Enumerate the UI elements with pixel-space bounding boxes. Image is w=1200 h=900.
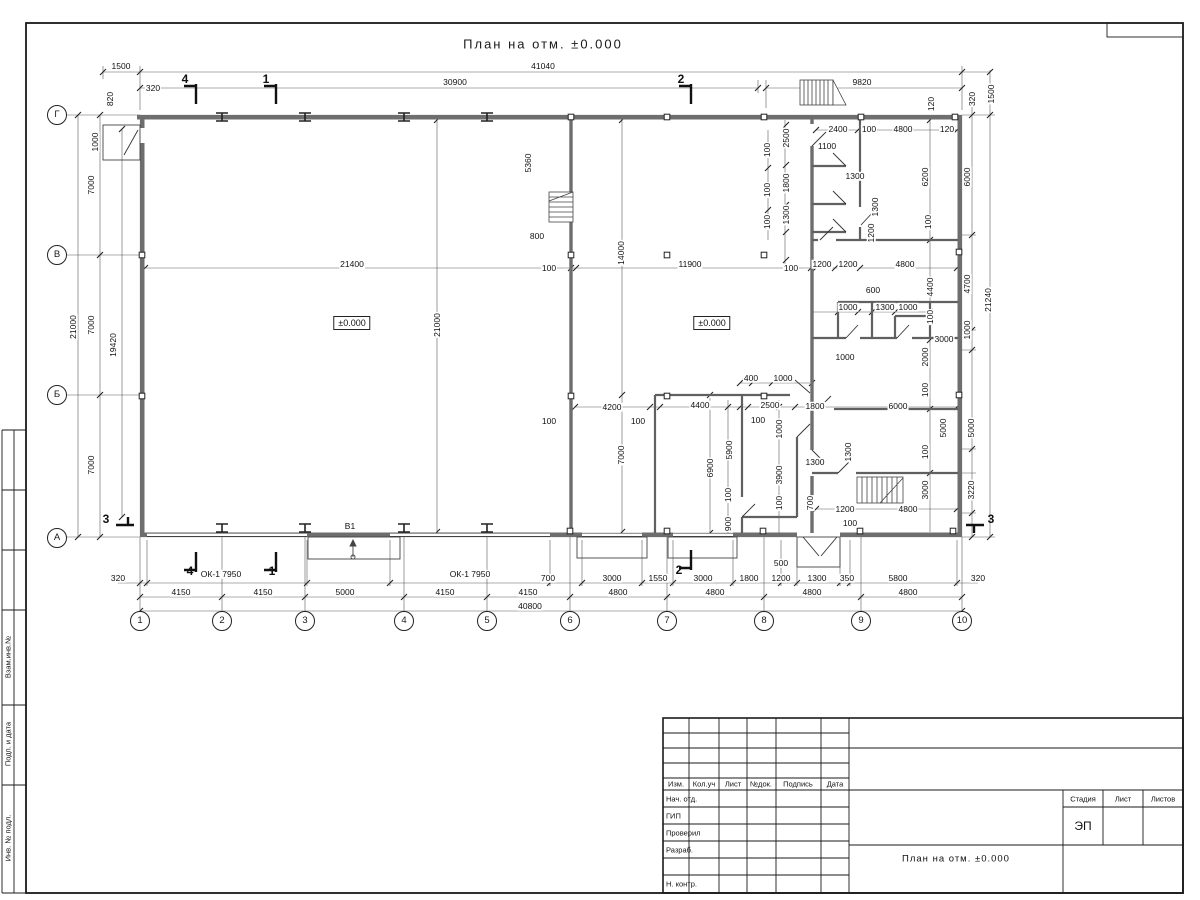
dim-label: 1200 xyxy=(838,260,859,269)
dim-label: 320 xyxy=(110,574,126,583)
dim-label: 1300 xyxy=(805,458,826,467)
tb-rev-header: Изм. xyxy=(668,780,684,788)
dim-label: 120 xyxy=(927,96,936,112)
axis-bubble-col-7: 7 xyxy=(657,611,677,631)
dim-label: 1300 xyxy=(845,172,866,181)
dim-label: 320 xyxy=(968,91,977,107)
column-square xyxy=(568,393,574,399)
column-square xyxy=(568,114,574,120)
dim-label: 4150 xyxy=(171,588,192,597)
column-square xyxy=(761,114,767,120)
dim-label: 400 xyxy=(743,374,759,383)
dim-label: 1300 xyxy=(807,574,828,583)
dim-label: 21000 xyxy=(433,312,442,338)
tb-role-label: Проверил xyxy=(666,829,701,837)
dim-label: 1800 xyxy=(782,173,791,194)
dim-label: 100 xyxy=(750,416,766,425)
dim-label: ОК-1 7950 xyxy=(449,570,491,579)
dim-label: 1300 xyxy=(782,205,791,226)
dim-label: 820 xyxy=(106,91,115,107)
axis-bubble-col-8: 8 xyxy=(754,611,774,631)
dim-label: 4150 xyxy=(518,588,539,597)
dim-label: 5900 xyxy=(725,440,734,461)
dim-label: 3000 xyxy=(921,480,930,501)
stair-bottom-right xyxy=(857,477,903,503)
dim-label: 2000 xyxy=(921,347,930,368)
dim-label: 100 xyxy=(724,487,733,503)
dim-label: В1 xyxy=(344,522,356,531)
dim-label: 7000 xyxy=(87,315,96,336)
column-square xyxy=(956,249,962,255)
dim-label: 1100 xyxy=(817,142,837,151)
dim-label: 4150 xyxy=(435,588,456,597)
column-square xyxy=(664,528,670,534)
dim-label: 6000 xyxy=(963,167,972,188)
dim-label: ±0.000 xyxy=(333,316,370,330)
column-square xyxy=(568,252,574,258)
dim-label: 4200 xyxy=(602,403,623,412)
tb-role-label: Нач. отд. xyxy=(666,795,697,803)
dim-label: 1000 xyxy=(91,132,100,153)
dim-label: 350 xyxy=(839,574,855,583)
axis-bubble-col-5: 5 xyxy=(477,611,497,631)
dim-label: 7000 xyxy=(87,175,96,196)
dim-label: 900 xyxy=(724,516,733,532)
axis-bubble-col-9: 9 xyxy=(851,611,871,631)
walls xyxy=(137,115,962,537)
column-ibeam xyxy=(299,524,311,532)
axis-bubble-row-А: А xyxy=(47,528,67,548)
dim-label: 6000 xyxy=(888,402,909,411)
dim-label: 4150 xyxy=(253,588,274,597)
axis-bubble-col-4: 4 xyxy=(394,611,414,631)
dim-label: 4800 xyxy=(895,260,916,269)
dim-label: 100 xyxy=(541,264,557,273)
column-ibeam xyxy=(481,524,493,532)
dim-label: 4400 xyxy=(926,277,935,298)
dim-label: 100 xyxy=(921,382,930,398)
axis-bubble-col-3: 3 xyxy=(295,611,315,631)
frame-left-label: Взам.инв.№ xyxy=(4,636,12,678)
titleblock-grid xyxy=(663,718,1183,893)
dim-label: 100 xyxy=(763,142,772,158)
column-square xyxy=(761,252,767,258)
dim-label: 100 xyxy=(926,309,935,325)
dim-label: 21000 xyxy=(69,314,78,340)
dim-label: 19420 xyxy=(109,332,118,358)
dim-label: 100 xyxy=(861,125,877,134)
dim-label: 1550 xyxy=(648,574,669,583)
dim-label: 1200 xyxy=(835,505,856,514)
dim-label: 100 xyxy=(630,417,646,426)
dim-label: 3000 xyxy=(602,574,623,583)
dim-label: 1300 xyxy=(871,197,880,218)
dim-label: 5800 xyxy=(888,574,909,583)
dim-label: 700 xyxy=(540,574,556,583)
dim-label: 1800 xyxy=(805,402,826,411)
dim-label: 21400 xyxy=(339,260,365,269)
axis-bubble-col-2: 2 xyxy=(212,611,232,631)
dim-label: 1300 xyxy=(844,442,853,463)
dim-label: 1000 xyxy=(838,303,859,312)
column-square xyxy=(950,528,956,534)
dim-label: 40800 xyxy=(517,602,543,611)
column-square xyxy=(857,528,863,534)
dim-label: 4800 xyxy=(608,588,629,597)
dim-label: 500 xyxy=(773,559,789,568)
dim-label: 5000 xyxy=(967,418,976,439)
dim-label: 41040 xyxy=(530,62,556,71)
dim-label: 2500 xyxy=(760,401,781,410)
dim-label: 9820 xyxy=(852,78,873,87)
tb-rev-header: Дата xyxy=(827,780,844,788)
axis-bubble-col-6: 6 xyxy=(560,611,580,631)
tb-rev-header: Лист xyxy=(725,780,741,788)
dim-label: 30900 xyxy=(442,78,468,87)
dim-label: 2500 xyxy=(782,128,791,149)
dimension-ticks xyxy=(75,69,993,614)
dimension-lines xyxy=(66,66,995,613)
dim-label: 100 xyxy=(783,264,799,273)
tb-rev-header: Кол.уч xyxy=(693,780,716,788)
dim-label: 100 xyxy=(775,495,784,511)
drawing-sheet: План на отм. ±0.000 15004104030900982032… xyxy=(0,0,1200,900)
dim-label: 1500 xyxy=(987,84,996,105)
section-mark-label: 4 xyxy=(181,73,190,85)
dim-label: ±0.000 xyxy=(693,316,730,330)
section-mark-label: 3 xyxy=(102,513,111,525)
section-mark-label: 2 xyxy=(675,564,684,576)
dim-label: 11900 xyxy=(677,260,702,269)
dim-label: 4800 xyxy=(898,588,919,597)
dim-label: 1000 xyxy=(773,374,794,383)
dim-label: 4700 xyxy=(963,274,972,295)
dim-label: 700 xyxy=(806,495,815,511)
tb-role-label: Н. контр. xyxy=(666,880,697,888)
section-flags xyxy=(116,84,984,572)
dim-label: 800 xyxy=(529,232,545,241)
dim-label: 600 xyxy=(865,286,881,295)
column-square xyxy=(664,393,670,399)
dim-label: 1000 xyxy=(775,419,784,440)
dim-label: 1000 xyxy=(898,303,919,312)
dim-label: 5360 xyxy=(524,153,533,174)
dim-label: 4800 xyxy=(705,588,726,597)
axis-bubble-row-Г: Г xyxy=(47,105,67,125)
dim-label: 4800 xyxy=(898,505,919,514)
dim-label: 3000 xyxy=(934,335,955,344)
dim-label: 100 xyxy=(924,214,933,230)
dim-label: 4400 xyxy=(690,401,711,410)
dim-label: 4800 xyxy=(893,125,914,134)
dim-label: 4800 xyxy=(802,588,823,597)
tb-role-label: ГИП xyxy=(666,812,681,820)
tb-role-label: Разраб. xyxy=(666,846,693,854)
column-square xyxy=(760,528,766,534)
dim-label: 120 xyxy=(939,125,955,134)
column-square xyxy=(567,528,573,534)
section-mark-label: 1 xyxy=(262,73,271,85)
dim-label: 100 xyxy=(763,182,772,198)
dim-label: 3000 xyxy=(693,574,714,583)
dim-label: 1200 xyxy=(812,260,833,269)
drawing-title: План на отм. ±0.000 xyxy=(463,37,623,52)
dim-label: 320 xyxy=(970,574,986,583)
dim-label: 7000 xyxy=(87,455,96,476)
dim-label: 1800 xyxy=(739,574,760,583)
dim-label: 1000 xyxy=(835,353,856,362)
tb-stage-header: Стадия xyxy=(1070,795,1096,803)
axis-bubble-col-1: 1 xyxy=(130,611,150,631)
column-ibeam xyxy=(216,524,228,532)
dim-label: 1500 xyxy=(111,62,132,71)
dim-label: 3220 xyxy=(967,480,976,501)
column-square xyxy=(761,393,767,399)
floor-plan-canvas xyxy=(0,0,1200,900)
column-square xyxy=(952,114,958,120)
tb-rev-header: №док. xyxy=(750,780,772,788)
dim-label: 320 xyxy=(145,84,161,93)
tb-rev-header: Подпись xyxy=(783,780,813,788)
dim-label: 100 xyxy=(842,519,858,528)
door-swings xyxy=(124,130,909,556)
dim-label: 1300 xyxy=(875,303,896,312)
dim-label: 14000 xyxy=(617,240,626,266)
section-mark-label: 4 xyxy=(186,565,195,577)
frame-left-label: Инв. № подл. xyxy=(4,815,12,862)
dim-label: 1000 xyxy=(963,320,972,341)
dim-label: 6200 xyxy=(921,167,930,188)
tb-stage-header: Лист xyxy=(1115,795,1131,803)
section-mark-label: 3 xyxy=(987,513,996,525)
sheet-frame xyxy=(2,23,1183,893)
dim-label: 1200 xyxy=(867,223,876,244)
titleblock-doc-title: План на отм. ±0.000 xyxy=(902,854,1010,864)
format-box xyxy=(1107,23,1183,37)
column-square xyxy=(139,393,145,399)
column-ibeam xyxy=(398,524,410,532)
axis-bubble-col-10: 10 xyxy=(952,611,972,631)
section-mark-label: 2 xyxy=(677,73,686,85)
column-square xyxy=(956,392,962,398)
column-square xyxy=(664,114,670,120)
dim-label: ОК-1 7950 xyxy=(200,570,242,579)
dim-label: 100 xyxy=(541,417,557,426)
dim-label: 7000 xyxy=(617,445,626,466)
dim-label: 2400 xyxy=(828,125,849,134)
dim-label: 100 xyxy=(763,214,772,230)
column-square xyxy=(858,114,864,120)
frame-left-label: Подп. и дата xyxy=(4,722,12,766)
dim-label: 3900 xyxy=(775,465,784,486)
axis-bubble-row-В: В xyxy=(47,245,67,265)
dim-label: 100 xyxy=(921,444,930,460)
dim-label: 5000 xyxy=(939,418,948,439)
dim-label: 1200 xyxy=(771,574,792,583)
section-mark-label: 1 xyxy=(268,565,277,577)
column-square xyxy=(664,252,670,258)
dim-label: 6900 xyxy=(706,458,715,479)
stage-value: ЭП xyxy=(1074,820,1091,832)
column-square xyxy=(139,252,145,258)
dim-label: 21240 xyxy=(984,287,993,313)
axis-bubble-row-Б: Б xyxy=(47,385,67,405)
tb-stage-header: Листов xyxy=(1151,795,1175,803)
dim-label: 5000 xyxy=(335,588,356,597)
